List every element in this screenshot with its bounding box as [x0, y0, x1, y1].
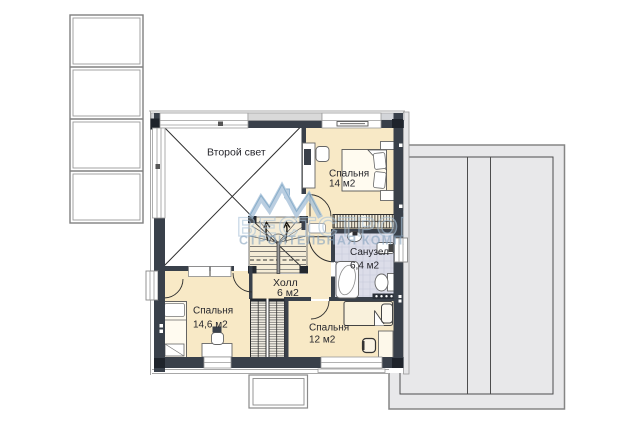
- svg-text:6,4 м2: 6,4 м2: [350, 261, 380, 272]
- svg-text:12 м2: 12 м2: [309, 335, 336, 346]
- svg-text:Санузел: Санузел: [350, 247, 389, 258]
- svg-text:14,6 м2: 14,6 м2: [193, 320, 228, 331]
- svg-text:14 м2: 14 м2: [329, 179, 356, 190]
- svg-text:Второй свет: Второй свет: [207, 147, 266, 159]
- svg-text:Спальня: Спальня: [193, 306, 233, 317]
- svg-text:Спальня: Спальня: [309, 323, 349, 334]
- svg-text:6 м2: 6 м2: [277, 287, 299, 299]
